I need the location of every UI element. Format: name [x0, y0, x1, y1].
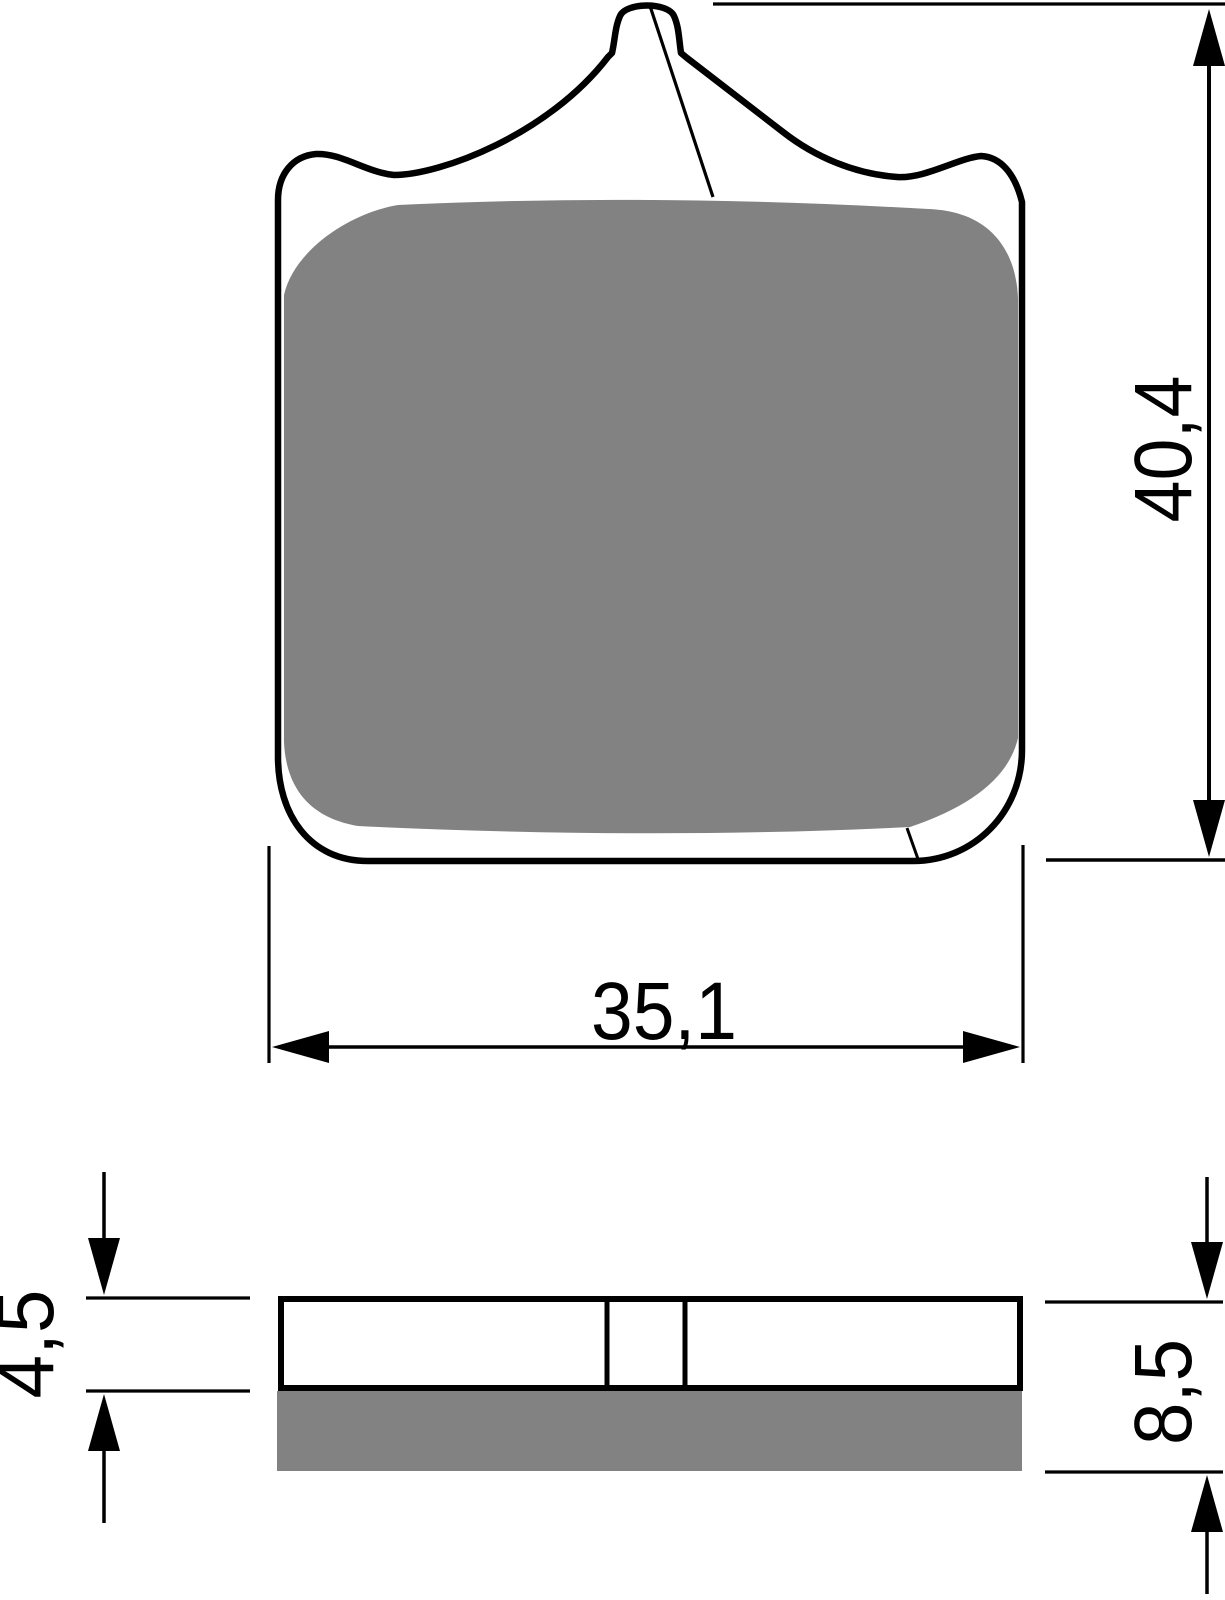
svg-text:35,1: 35,1 — [591, 966, 737, 1057]
svg-text:4,5: 4,5 — [0, 1290, 71, 1399]
svg-text:40,4: 40,4 — [1118, 376, 1209, 523]
svg-text:8,5: 8,5 — [1118, 1339, 1209, 1445]
